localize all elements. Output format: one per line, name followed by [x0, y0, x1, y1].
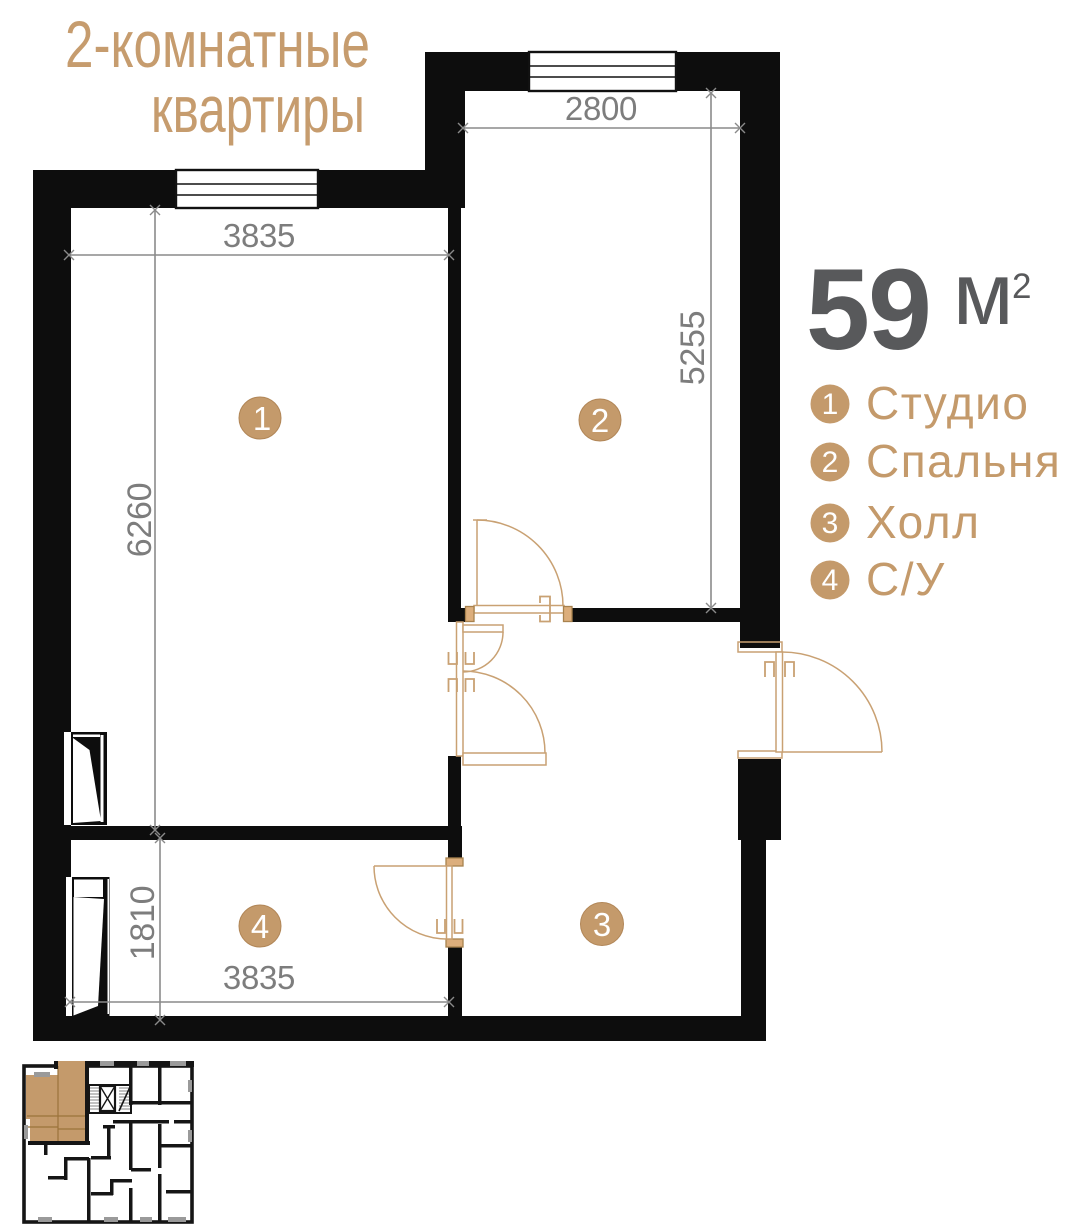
svg-text:3835: 3835 — [223, 959, 295, 996]
svg-text:2: 2 — [591, 402, 609, 439]
svg-text:Спальня: Спальня — [866, 435, 1061, 487]
svg-text:59: 59 — [806, 246, 930, 374]
svg-text:2: 2 — [822, 446, 839, 479]
svg-text:1810: 1810 — [124, 886, 162, 960]
svg-text:квартиры: квартиры — [151, 72, 365, 146]
svg-text:3: 3 — [593, 906, 611, 943]
svg-text:2-комнатные: 2-комнатные — [65, 7, 370, 81]
svg-text:2800: 2800 — [565, 90, 637, 127]
svg-text:1: 1 — [253, 400, 271, 437]
svg-text:5255: 5255 — [674, 311, 712, 385]
svg-text:2: 2 — [1012, 267, 1031, 306]
svg-text:м: м — [953, 244, 1014, 343]
svg-text:4: 4 — [251, 908, 269, 945]
svg-text:Холл: Холл — [866, 496, 980, 548]
svg-text:4: 4 — [822, 564, 839, 597]
svg-text:С/У: С/У — [866, 553, 946, 605]
svg-text:3: 3 — [822, 507, 839, 540]
svg-text:1: 1 — [822, 388, 839, 421]
svg-text:3835: 3835 — [223, 217, 295, 254]
svg-text:6260: 6260 — [121, 483, 159, 557]
svg-text:Студио: Студио — [866, 377, 1029, 429]
